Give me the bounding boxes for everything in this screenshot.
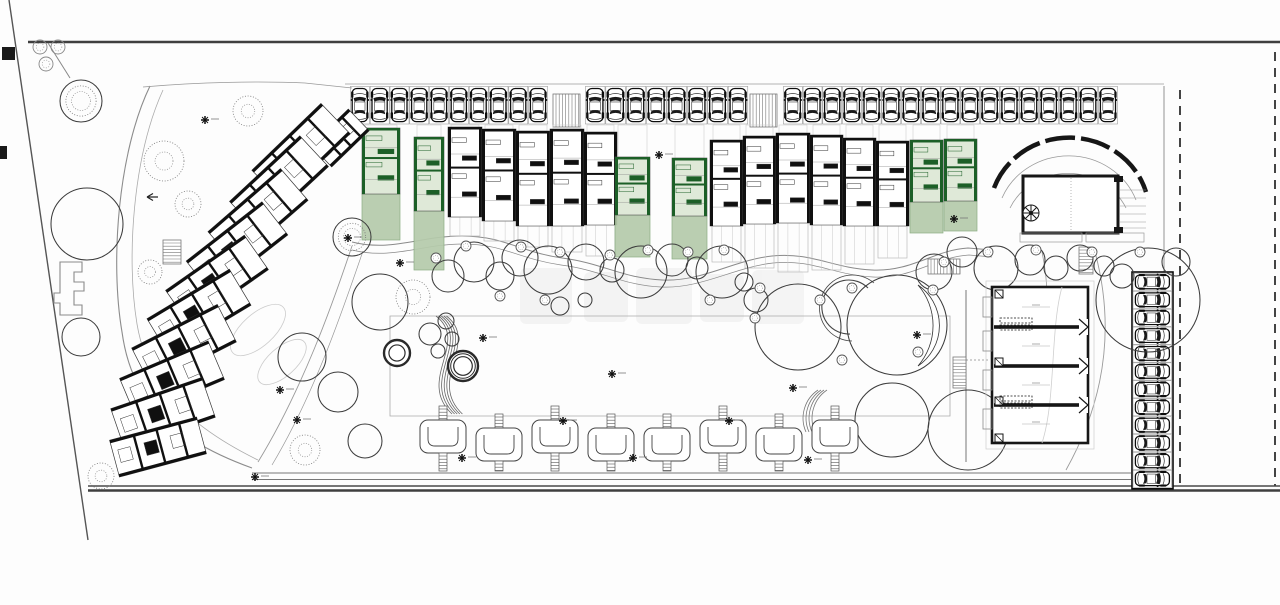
unit-highlighted-green[interactable] [362, 125, 400, 240]
unit-highlighted-green[interactable] [414, 125, 444, 270]
stairs-hatch [163, 240, 181, 264]
parking-column-right [1132, 272, 1173, 489]
spiral-stair-icon [1023, 205, 1039, 221]
stairs-hatch [553, 94, 580, 127]
stairs-hatch [953, 357, 966, 388]
row-building-bottom-right [983, 281, 1094, 449]
clubhouse-building [1023, 176, 1118, 233]
unit-highlighted-green[interactable] [910, 125, 943, 233]
unit-highlighted-green[interactable] [944, 125, 977, 231]
site-plan-canvas [0, 0, 1280, 605]
site-plan-page [0, 0, 1280, 605]
stairs-hatch [750, 94, 777, 127]
